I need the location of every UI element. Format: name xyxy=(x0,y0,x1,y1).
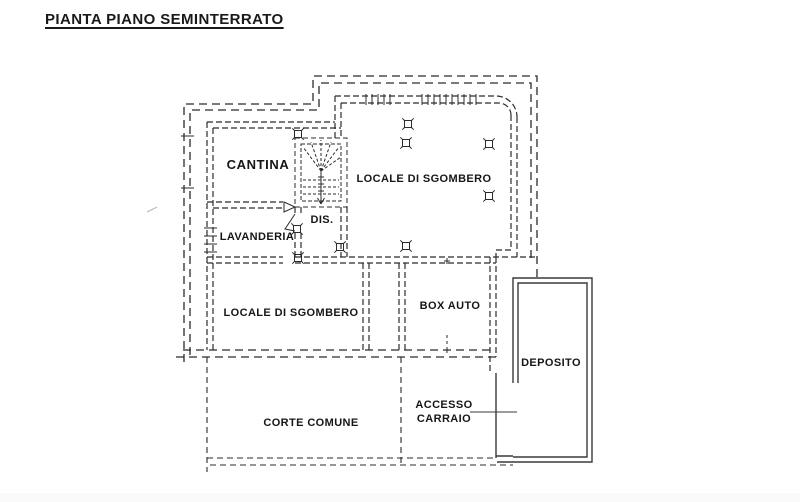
accesso-carraio-lines xyxy=(470,373,517,458)
column-symbol xyxy=(483,190,494,201)
column-symbol xyxy=(483,138,494,149)
room-label-dis: DIS. xyxy=(311,214,334,226)
column-symbol xyxy=(292,128,303,139)
floorplan-page: PIANTA PIANO SEMINTERRATO xyxy=(0,0,800,502)
room-label-lavanderia: LAVANDERIA xyxy=(220,231,294,243)
floor-plan: CANTINA LAVANDERIA DIS. LOCALE DI SGOMBE… xyxy=(0,0,800,502)
column-symbol xyxy=(292,252,303,263)
outer-boundary xyxy=(176,76,537,362)
room-label-box-auto: BOX AUTO xyxy=(420,300,481,312)
stray-mark xyxy=(147,207,157,212)
column-symbol xyxy=(334,241,345,252)
column-symbol xyxy=(400,137,411,148)
room-label-corte-comune: CORTE COMUNE xyxy=(263,417,358,429)
column-symbol xyxy=(402,118,413,129)
column-symbol xyxy=(400,240,411,251)
room-label-locale-sgombero-upper: LOCALE DI SGOMBERO xyxy=(357,173,492,185)
room-label-cantina: CANTINA xyxy=(227,157,290,172)
room-label-locale-sgombero-lower: LOCALE DI SGOMBERO xyxy=(224,307,359,319)
deposito-walls xyxy=(497,278,592,462)
room-label-accesso-line2: CARRAIO xyxy=(417,413,471,425)
room-label-deposito: DEPOSITO xyxy=(521,357,581,369)
staircase xyxy=(295,138,347,207)
page-bottom-strip xyxy=(0,493,800,502)
room-label-accesso-line1: ACCESSO xyxy=(415,399,472,411)
